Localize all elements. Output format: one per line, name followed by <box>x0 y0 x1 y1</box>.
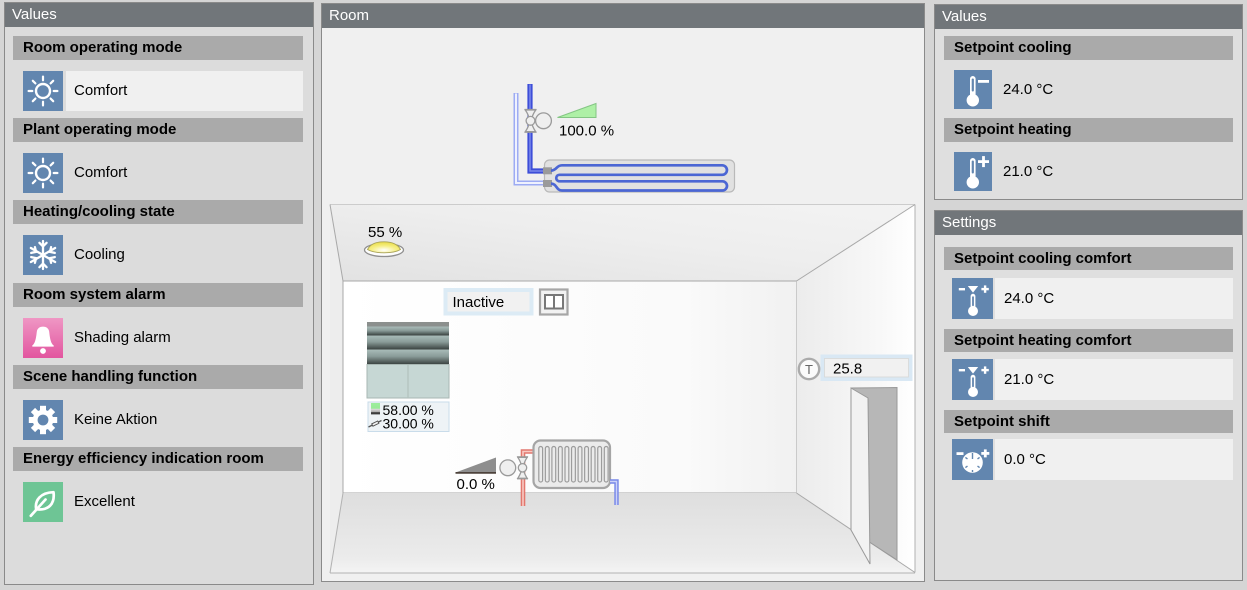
svg-text:Inactive: Inactive <box>453 294 505 311</box>
svg-text:0.0 %: 0.0 % <box>457 476 495 493</box>
svg-text:100.0 %: 100.0 % <box>559 123 614 140</box>
svg-text:55 %: 55 % <box>368 224 402 241</box>
svg-text:T: T <box>805 362 813 377</box>
svg-text:25.8: 25.8 <box>833 361 862 378</box>
svg-text:30.00 %: 30.00 % <box>383 416 434 432</box>
